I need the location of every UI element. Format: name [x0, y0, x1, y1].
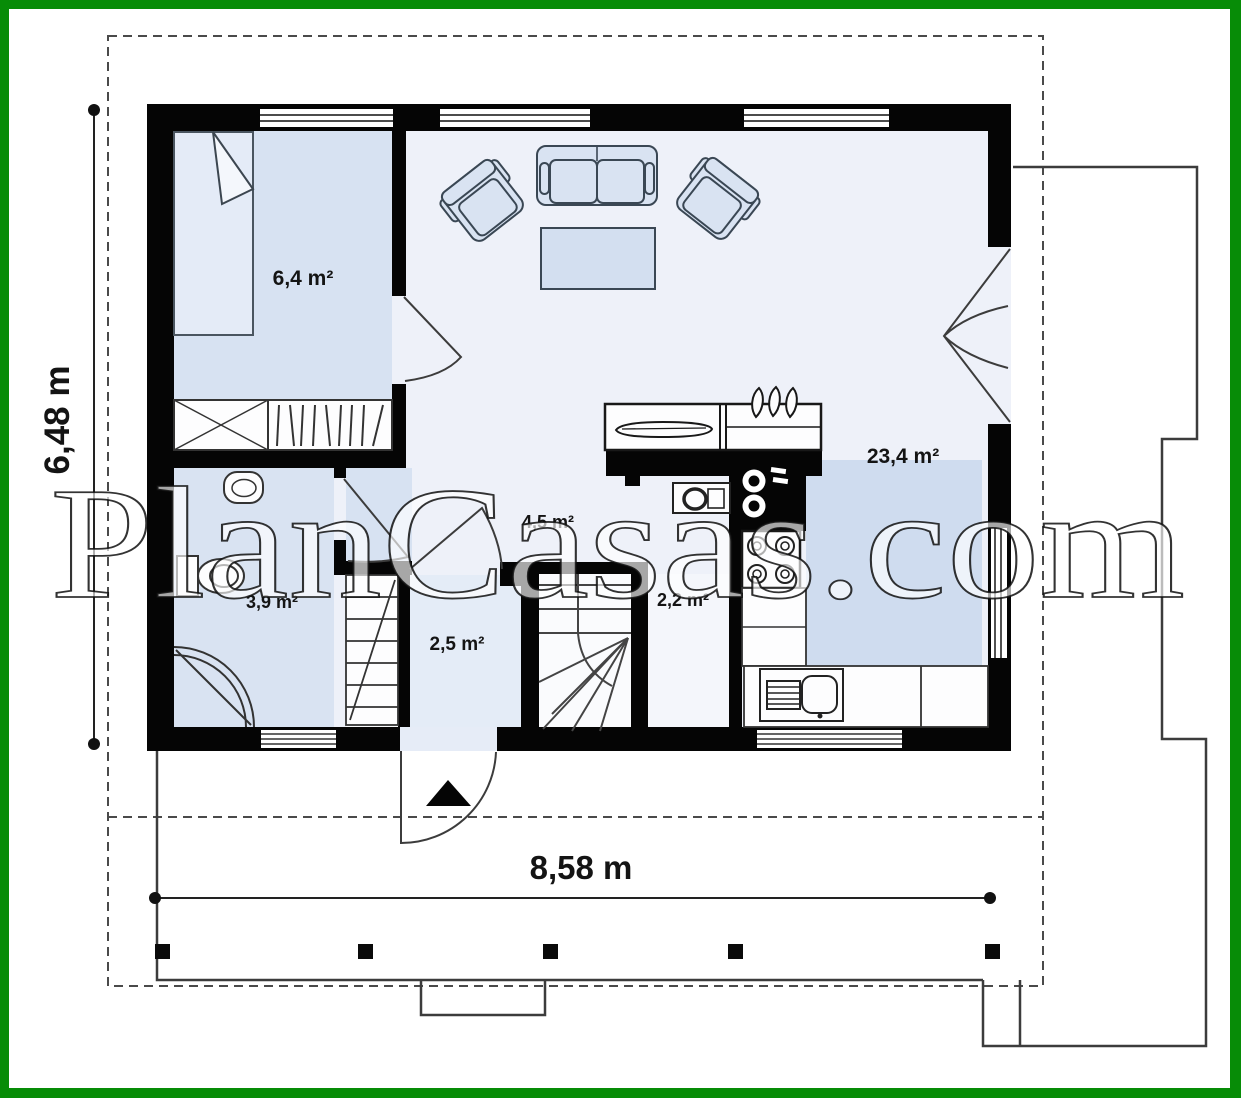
svg-text:6,4 m²: 6,4 m² [273, 267, 334, 290]
svg-text:8,58 m: 8,58 m [530, 849, 633, 886]
svg-text:2,5 m²: 2,5 m² [430, 634, 485, 655]
svg-text:PlanCasas.com: PlanCasas.com [50, 454, 1185, 632]
